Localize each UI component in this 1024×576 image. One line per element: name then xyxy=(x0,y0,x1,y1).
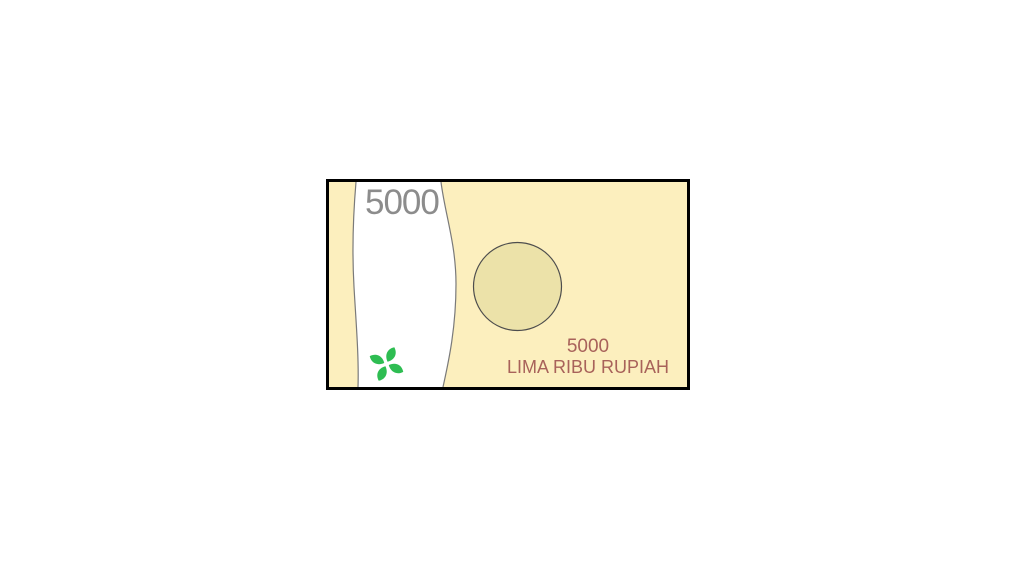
denomination-value: 5000 xyxy=(468,337,708,357)
corner-value: 5000 xyxy=(365,185,439,220)
banknote-illustration: 5000 5000 LIMA RIBU RUPIAH xyxy=(326,179,690,390)
denomination-block: 5000 LIMA RIBU RUPIAH xyxy=(468,337,708,377)
watermark-circle xyxy=(474,243,562,331)
denomination-text: LIMA RIBU RUPIAH xyxy=(468,357,708,377)
page-background: 5000 5000 LIMA RIBU RUPIAH xyxy=(0,0,1024,576)
